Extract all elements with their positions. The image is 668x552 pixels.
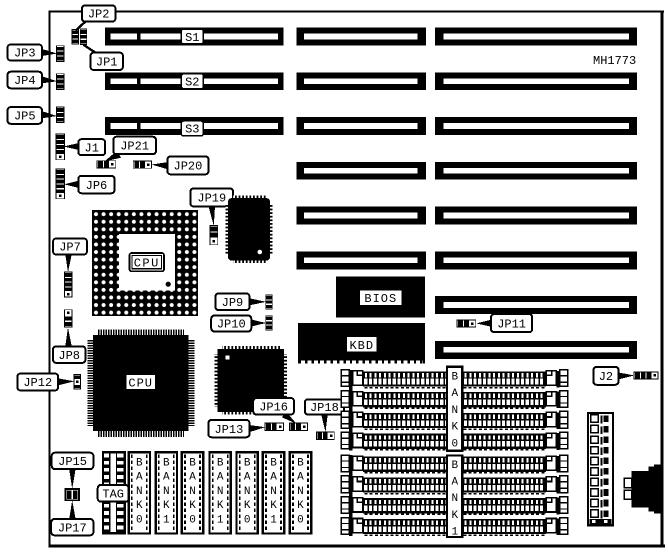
svg-text:S2: S2 bbox=[185, 76, 199, 90]
svg-text:0: 0 bbox=[297, 515, 304, 527]
svg-text:0: 0 bbox=[244, 515, 251, 527]
svg-text:1: 1 bbox=[217, 515, 224, 527]
svg-text:JP12: JP12 bbox=[23, 376, 52, 390]
svg-text:JP11: JP11 bbox=[497, 317, 526, 331]
svg-text:A: A bbox=[136, 472, 143, 484]
svg-text:J2: J2 bbox=[599, 370, 613, 384]
svg-text:B: B bbox=[297, 457, 304, 469]
svg-text:A: A bbox=[244, 472, 251, 484]
svg-text:B: B bbox=[217, 457, 224, 469]
svg-text:BIOS: BIOS bbox=[364, 292, 397, 306]
svg-text:JP7: JP7 bbox=[59, 241, 81, 255]
svg-text:JP8: JP8 bbox=[58, 349, 80, 363]
svg-text:JP4: JP4 bbox=[14, 74, 36, 88]
svg-text:B: B bbox=[270, 457, 277, 469]
svg-text:K: K bbox=[270, 500, 277, 512]
svg-text:A: A bbox=[297, 472, 304, 484]
svg-text:1: 1 bbox=[270, 515, 277, 527]
svg-text:N: N bbox=[136, 486, 143, 498]
svg-text:N: N bbox=[163, 486, 170, 498]
svg-text:0: 0 bbox=[189, 515, 196, 527]
svg-text:N: N bbox=[297, 486, 304, 498]
svg-text:JP2: JP2 bbox=[88, 8, 110, 22]
svg-text:MH1773: MH1773 bbox=[593, 54, 636, 68]
svg-text:K: K bbox=[163, 500, 170, 512]
svg-text:B: B bbox=[189, 457, 196, 469]
svg-text:CPU: CPU bbox=[134, 257, 160, 271]
svg-text:JP15: JP15 bbox=[58, 455, 87, 469]
svg-text:B: B bbox=[451, 460, 458, 472]
svg-text:K: K bbox=[189, 500, 196, 512]
svg-text:B: B bbox=[136, 457, 143, 469]
svg-text:0: 0 bbox=[451, 439, 458, 451]
svg-text:N: N bbox=[270, 486, 277, 498]
svg-text:1: 1 bbox=[163, 515, 170, 527]
svg-text:JP20: JP20 bbox=[174, 160, 203, 174]
svg-text:JP16: JP16 bbox=[259, 400, 288, 414]
svg-text:JP18: JP18 bbox=[310, 401, 339, 415]
svg-text:J1: J1 bbox=[85, 141, 99, 155]
svg-text:JP5: JP5 bbox=[14, 110, 36, 124]
svg-text:JP6: JP6 bbox=[86, 179, 108, 193]
svg-text:0: 0 bbox=[136, 515, 143, 527]
svg-text:S3: S3 bbox=[185, 123, 199, 137]
svg-text:A: A bbox=[217, 472, 224, 484]
svg-text:N: N bbox=[451, 405, 458, 417]
svg-text:K: K bbox=[244, 500, 251, 512]
svg-text:A: A bbox=[270, 472, 277, 484]
svg-text:JP21: JP21 bbox=[120, 140, 149, 154]
svg-text:JP19: JP19 bbox=[197, 192, 226, 206]
svg-text:JP10: JP10 bbox=[217, 318, 246, 332]
svg-text:N: N bbox=[451, 493, 458, 505]
svg-text:B: B bbox=[244, 457, 251, 469]
svg-text:JP3: JP3 bbox=[14, 47, 36, 61]
svg-text:1: 1 bbox=[451, 526, 458, 538]
svg-text:A: A bbox=[189, 472, 196, 484]
svg-text:N: N bbox=[217, 486, 224, 498]
svg-text:K: K bbox=[217, 500, 224, 512]
svg-text:KBD: KBD bbox=[349, 339, 374, 353]
svg-text:S1: S1 bbox=[185, 31, 199, 45]
svg-text:B: B bbox=[163, 457, 170, 469]
svg-text:JP13: JP13 bbox=[214, 423, 243, 437]
svg-text:N: N bbox=[244, 486, 251, 498]
svg-text:JP1: JP1 bbox=[96, 56, 118, 70]
svg-text:A: A bbox=[451, 477, 458, 489]
svg-text:A: A bbox=[163, 472, 170, 484]
svg-text:JP17: JP17 bbox=[58, 521, 87, 535]
svg-text:B: B bbox=[451, 371, 458, 383]
svg-text:K: K bbox=[451, 510, 458, 522]
svg-text:N: N bbox=[189, 486, 196, 498]
svg-text:JP9: JP9 bbox=[222, 296, 244, 310]
svg-text:CPU: CPU bbox=[128, 376, 153, 390]
svg-text:K: K bbox=[136, 500, 143, 512]
svg-text:K: K bbox=[451, 422, 458, 434]
svg-text:K: K bbox=[297, 500, 304, 512]
svg-text:A: A bbox=[451, 388, 458, 400]
svg-text:TAG: TAG bbox=[102, 488, 124, 502]
